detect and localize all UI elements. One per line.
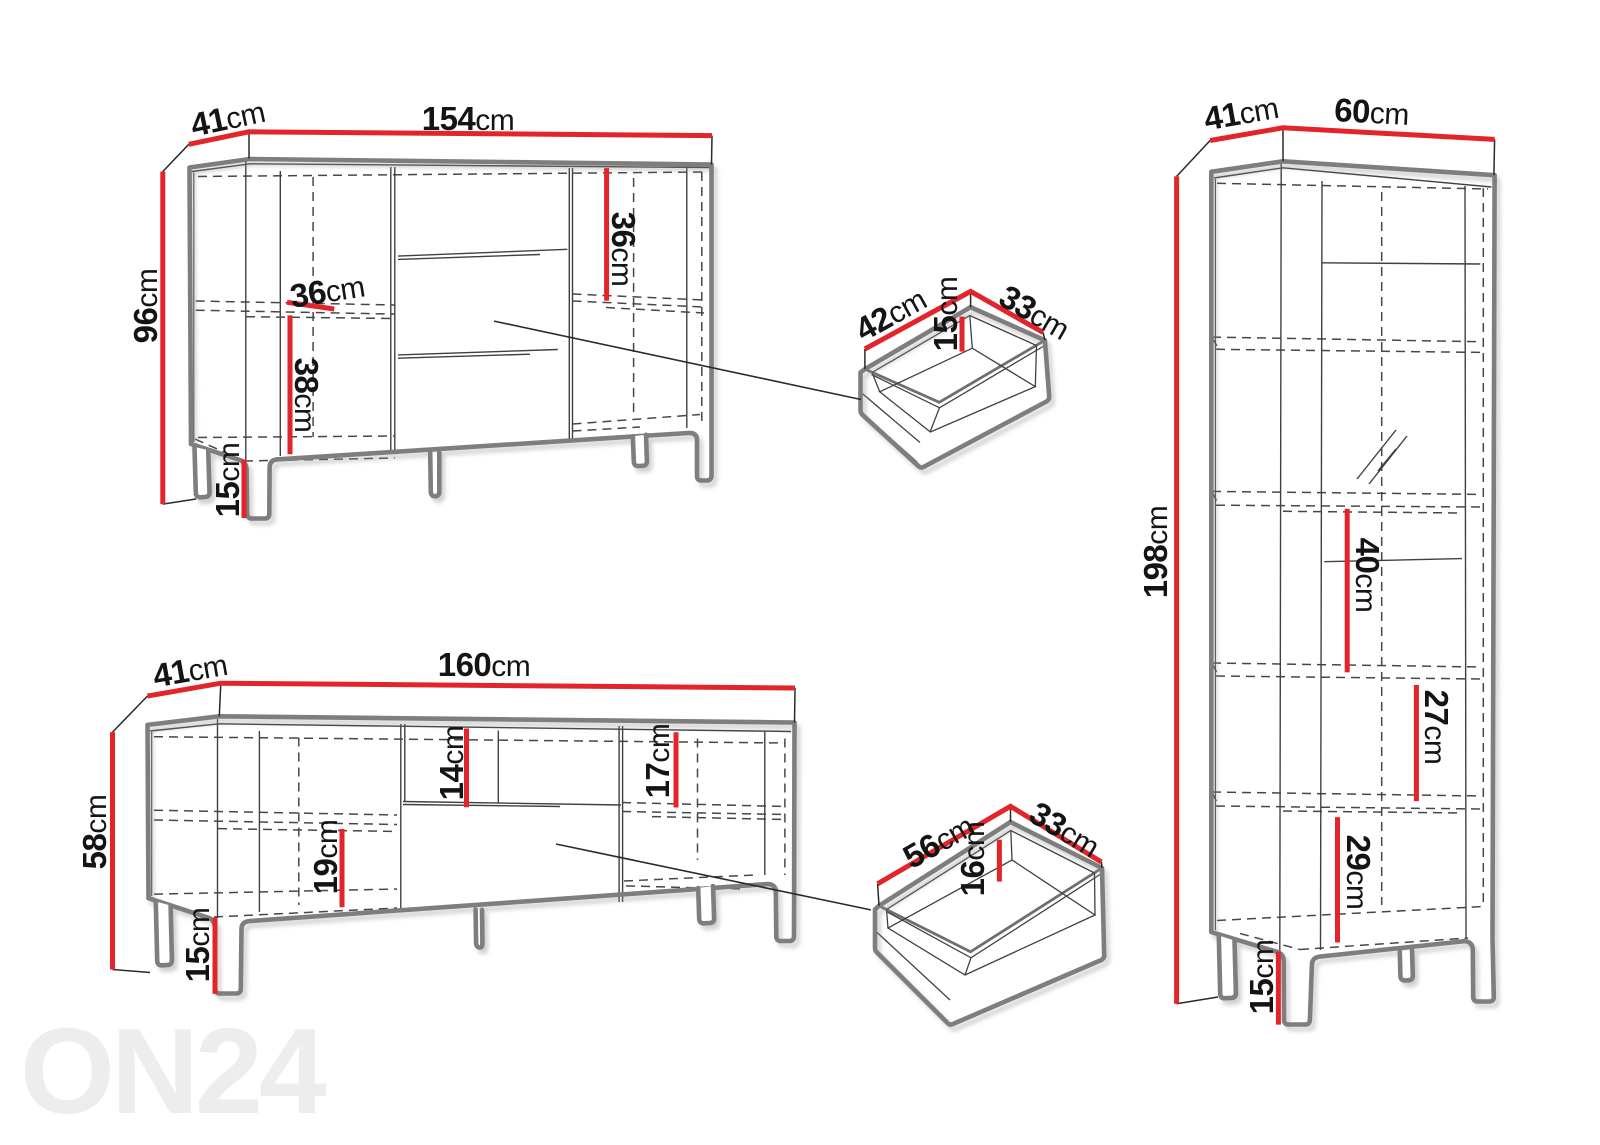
- svg-text:160cm: 160cm: [438, 646, 531, 683]
- svg-text:198cm: 198cm: [1137, 506, 1174, 599]
- svg-text:15cm: 15cm: [209, 443, 246, 518]
- svg-text:15cm: 15cm: [927, 277, 964, 352]
- svg-text:154cm: 154cm: [422, 100, 515, 137]
- svg-text:96cm: 96cm: [127, 269, 164, 344]
- svg-text:17cm: 17cm: [639, 724, 676, 799]
- svg-text:29cm: 29cm: [1340, 835, 1377, 910]
- svg-text:19cm: 19cm: [307, 820, 344, 895]
- svg-text:27cm: 27cm: [1418, 690, 1455, 765]
- svg-text:15cm: 15cm: [1243, 940, 1280, 1015]
- svg-text:14cm: 14cm: [433, 726, 470, 801]
- svg-text:15cm: 15cm: [179, 908, 216, 983]
- svg-text:ON24: ON24: [20, 1003, 327, 1139]
- svg-text:38cm: 38cm: [288, 358, 325, 433]
- svg-text:40cm: 40cm: [1349, 538, 1386, 613]
- svg-text:36cm: 36cm: [605, 212, 642, 287]
- svg-text:16cm: 16cm: [954, 822, 991, 897]
- svg-text:58cm: 58cm: [76, 795, 113, 870]
